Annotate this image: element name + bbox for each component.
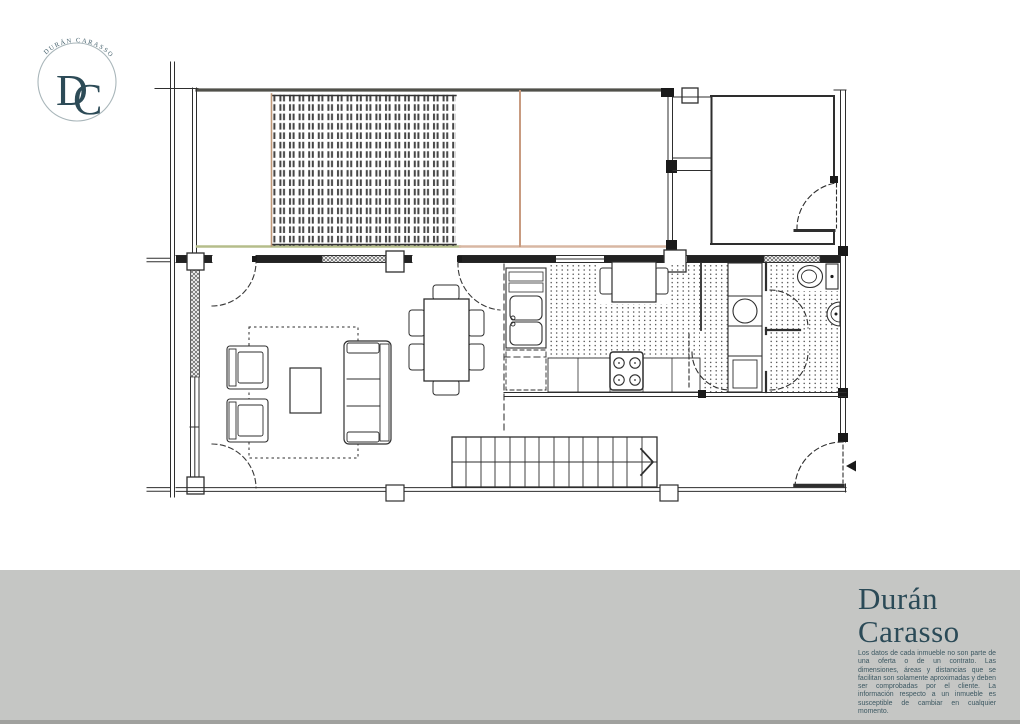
terrace-decking — [272, 94, 457, 246]
island-chair — [600, 268, 613, 294]
bedroom-door-arc — [797, 183, 836, 230]
utility-column — [728, 263, 762, 392]
toilet — [796, 263, 840, 291]
column — [187, 253, 204, 270]
footer-brand-line1: Durán — [858, 582, 1018, 615]
armchair — [227, 399, 268, 442]
window-hatch — [191, 270, 200, 377]
utility-shaft — [673, 97, 712, 171]
island-chair — [655, 268, 668, 294]
stove — [610, 352, 643, 390]
kitchen — [506, 262, 700, 392]
kitchen-island — [598, 262, 668, 304]
entrance-door-arc — [795, 442, 843, 486]
dining-chair — [409, 310, 425, 336]
side-door-arc — [212, 444, 256, 488]
window-hatch — [322, 256, 387, 263]
footer-brand-line2: Carasso — [858, 615, 1018, 648]
cabinet-dashed — [506, 350, 546, 390]
kitchen-sink-unit — [506, 268, 546, 348]
living-room — [227, 285, 484, 458]
dining-chair — [468, 344, 484, 370]
armchair — [227, 346, 268, 389]
entrance-arrow-icon — [846, 461, 856, 472]
column — [386, 251, 404, 272]
footer-brand: Durán Carasso — [858, 582, 1018, 648]
footer-disclaimer: Los datos de cada inmueble no son parte … — [858, 650, 996, 716]
dining-set — [409, 285, 484, 395]
footer-bottom-edge — [0, 720, 1020, 724]
terrace-door-arc — [212, 262, 256, 306]
stairs — [452, 437, 657, 487]
dining-table — [424, 299, 469, 381]
window-hatch — [764, 256, 820, 263]
column — [386, 485, 404, 501]
dining-chair — [409, 344, 425, 370]
island-table — [612, 262, 656, 302]
column — [660, 485, 678, 501]
living-left-wall — [187, 253, 204, 494]
dining-chair — [433, 380, 459, 395]
dining-chair — [468, 310, 484, 336]
bedroom — [711, 96, 838, 244]
sofa — [344, 341, 391, 444]
coffee-table — [290, 368, 321, 413]
dining-chair — [433, 285, 459, 300]
